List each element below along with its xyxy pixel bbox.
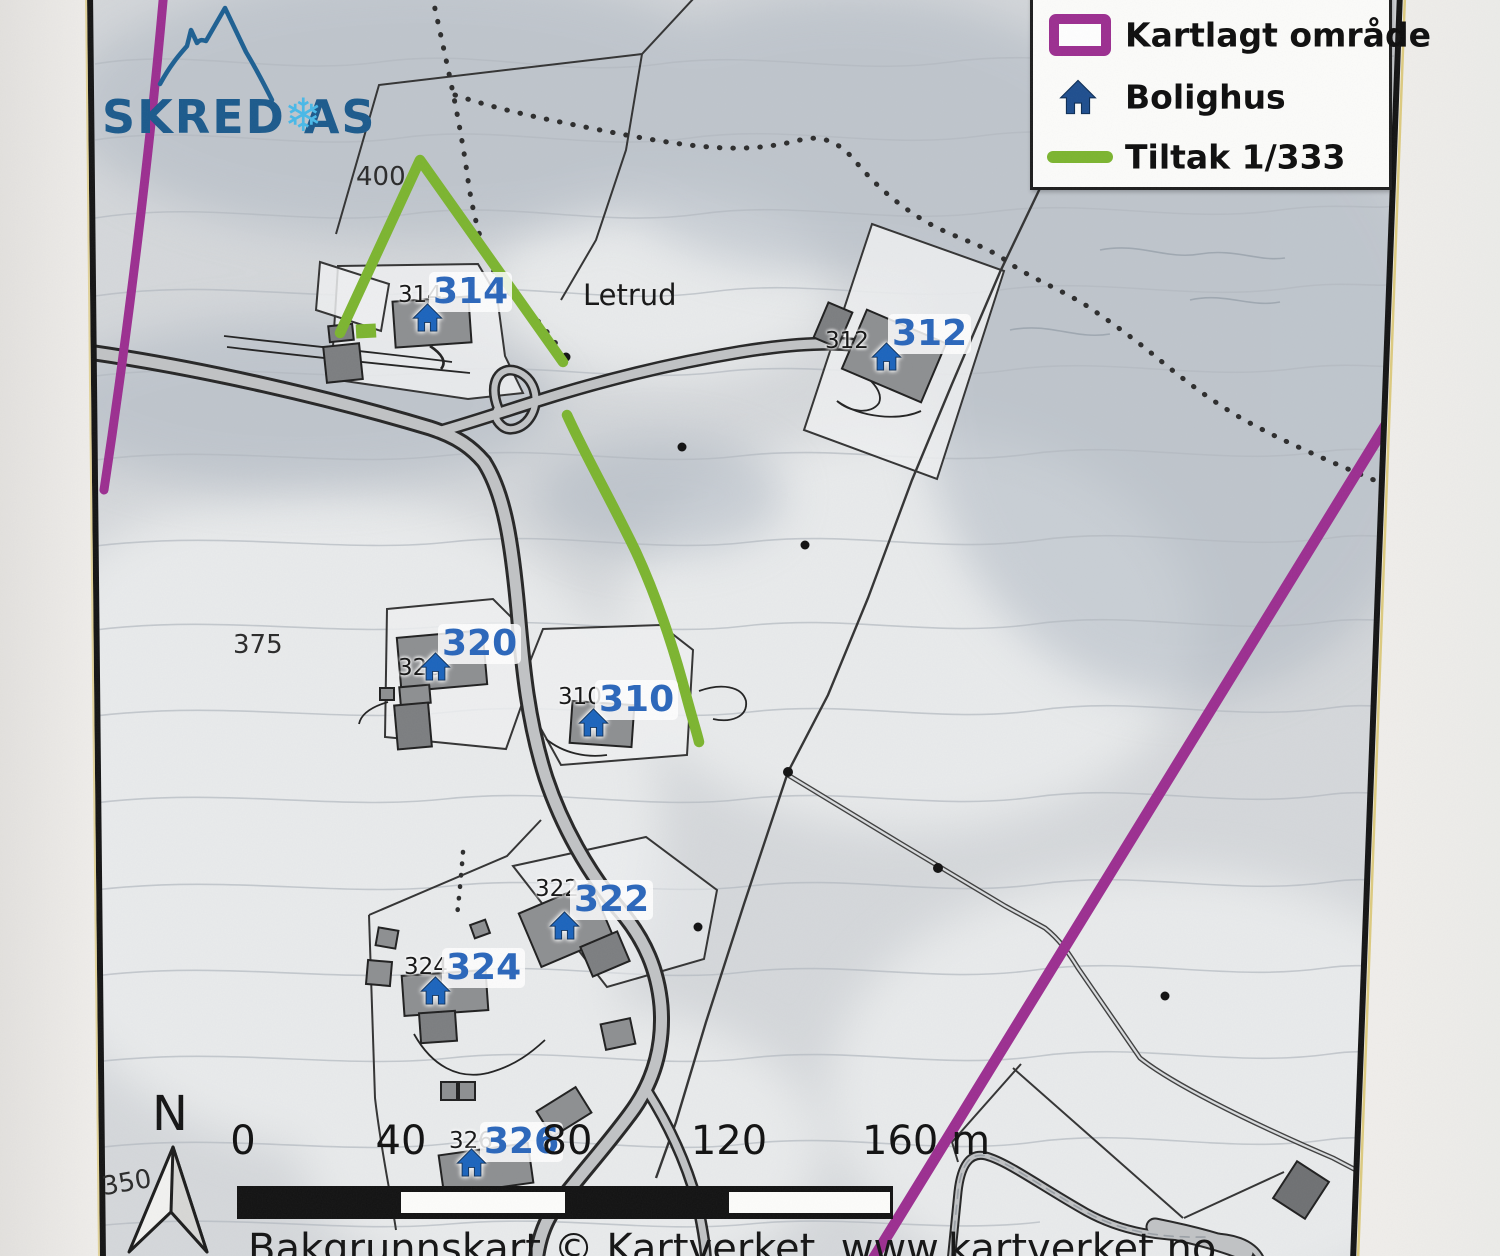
house-324-icon — [420, 974, 451, 1007]
logo-company-name: SKRED AS — [102, 90, 377, 144]
scale-tick-160m: 160 m — [862, 1118, 990, 1164]
scale-bar-segment — [401, 1192, 565, 1213]
house-icon — [1059, 77, 1097, 117]
house-326-icon — [456, 1146, 487, 1179]
contour-label-400: 400 — [356, 162, 406, 192]
house-310-icon — [578, 706, 609, 739]
legend-item-label: Bolighus — [1125, 78, 1286, 117]
scale-tick-0: 0 — [230, 1118, 255, 1164]
legend-box: Kartlagt område Bolighus Tiltak 1/333 — [1030, 0, 1392, 190]
mapped-area-swatch-icon — [1049, 14, 1111, 56]
scanned-map-page: SKRED AS ❄ Kartlagt område Bolighus Tilt… — [0, 0, 1500, 1256]
house-322-icon — [549, 909, 580, 942]
place-label-letrud: Letrud — [583, 278, 677, 312]
house-322-big-label: 322 — [570, 880, 653, 920]
house-324-big-label: 324 — [442, 948, 525, 988]
contour-label-375: 375 — [233, 630, 283, 660]
house-312-small-label: 312 — [825, 328, 869, 354]
house-320-icon — [420, 650, 451, 683]
house-314-icon — [412, 301, 443, 334]
legend-item-bolighus: Bolighus — [1033, 69, 1389, 125]
house-312-icon — [871, 340, 902, 373]
scale-tick-80: 80 — [542, 1118, 593, 1164]
legend-item-label: Kartlagt område — [1125, 16, 1431, 55]
snowflake-icon: ❄ — [284, 92, 323, 138]
legend-item-label: Tiltak 1/333 — [1125, 138, 1346, 177]
tiltak-line-swatch-icon — [1047, 151, 1113, 163]
scale-bar — [237, 1186, 893, 1219]
scale-bar-segment — [729, 1192, 890, 1213]
scale-tick-120: 120 — [691, 1118, 767, 1164]
map-credit-text: Bakgrunnskart © Kartverket, www.kartverk… — [248, 1226, 1216, 1256]
scale-tick-40: 40 — [376, 1118, 427, 1164]
legend-item-kartlagt-omrade: Kartlagt område — [1033, 7, 1389, 63]
tiltak-anchor — [356, 323, 377, 338]
north-label: N — [152, 1086, 188, 1142]
legend-item-tiltak: Tiltak 1/333 — [1033, 129, 1389, 185]
